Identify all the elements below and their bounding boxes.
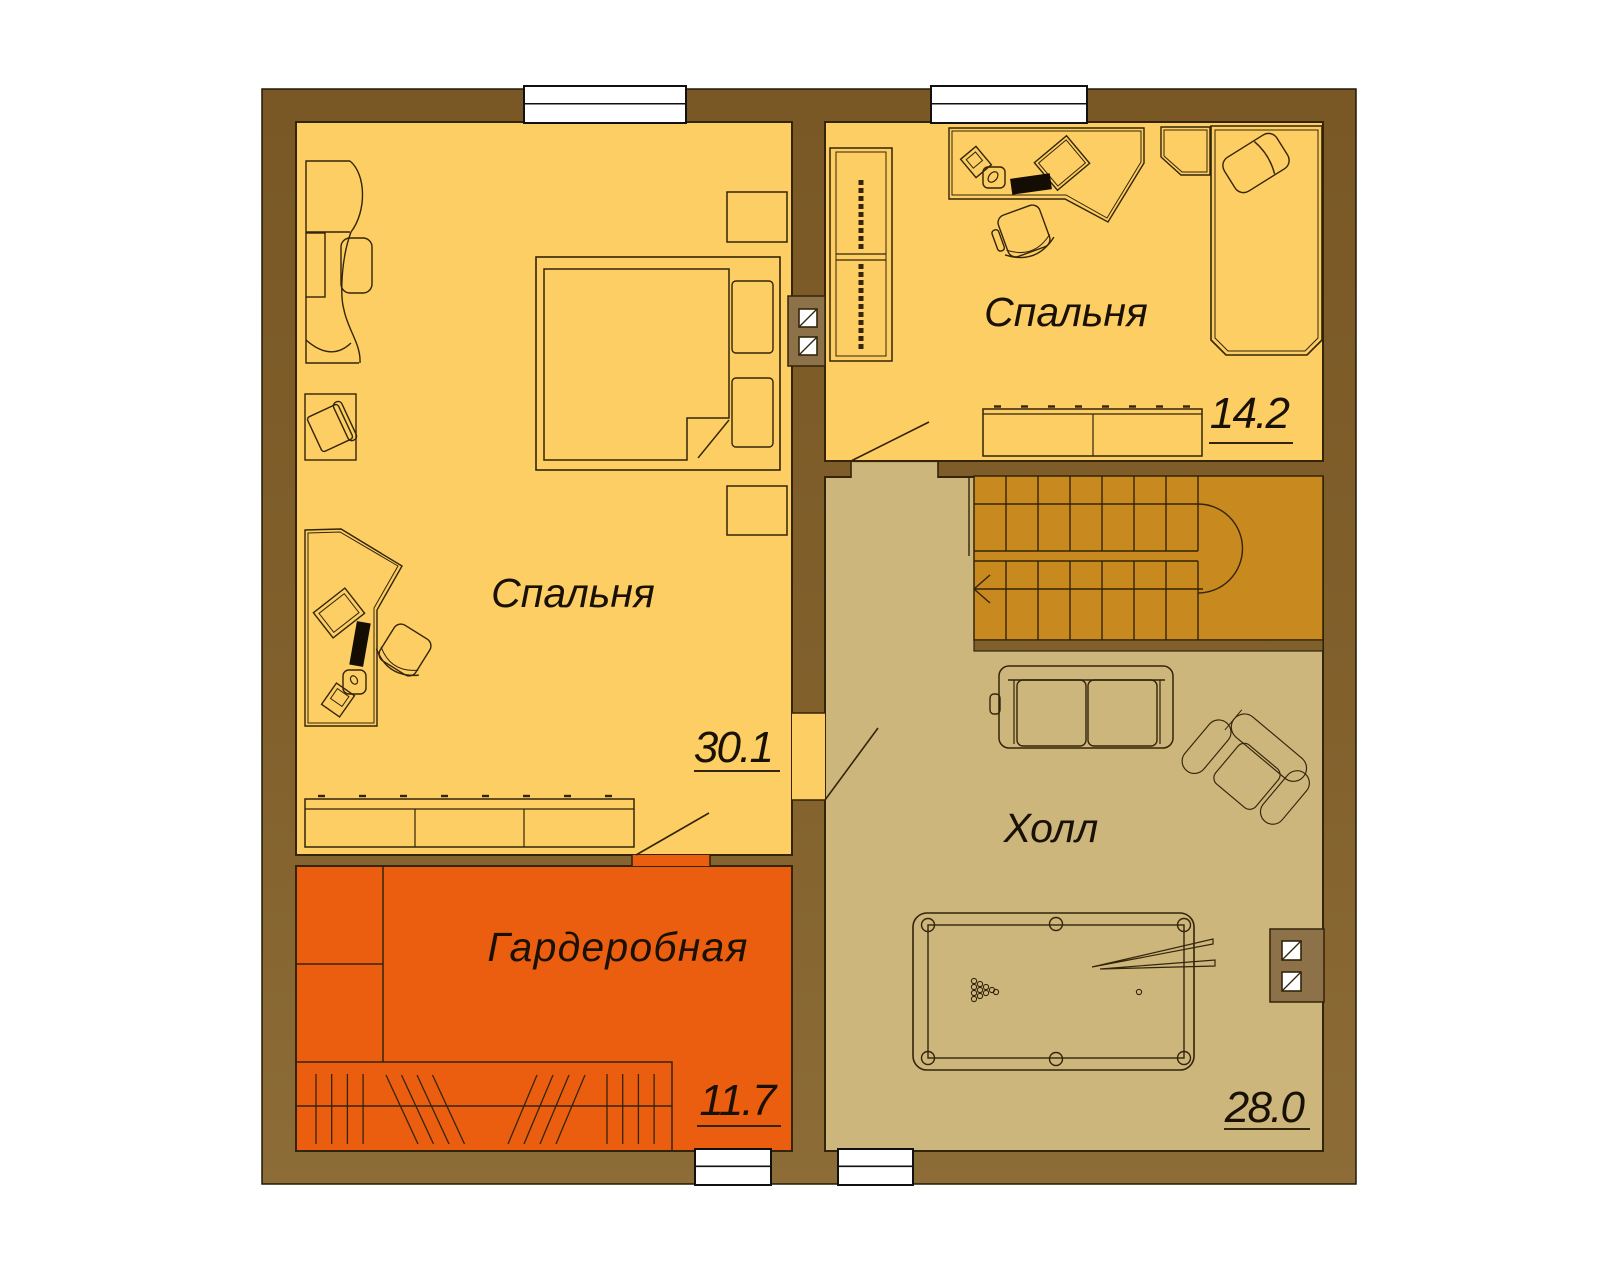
- svg-text:28.0: 28.0: [1224, 1083, 1306, 1132]
- svg-text:11.7: 11.7: [699, 1076, 778, 1125]
- svg-text:Спальня: Спальня: [984, 289, 1148, 335]
- svg-text:Спальня: Спальня: [491, 570, 655, 616]
- svg-text:30.1: 30.1: [694, 723, 772, 772]
- svg-text:Гардеробная: Гардеробная: [487, 924, 748, 970]
- svg-text:Холл: Холл: [1003, 805, 1099, 851]
- svg-text:14.2: 14.2: [1210, 389, 1290, 438]
